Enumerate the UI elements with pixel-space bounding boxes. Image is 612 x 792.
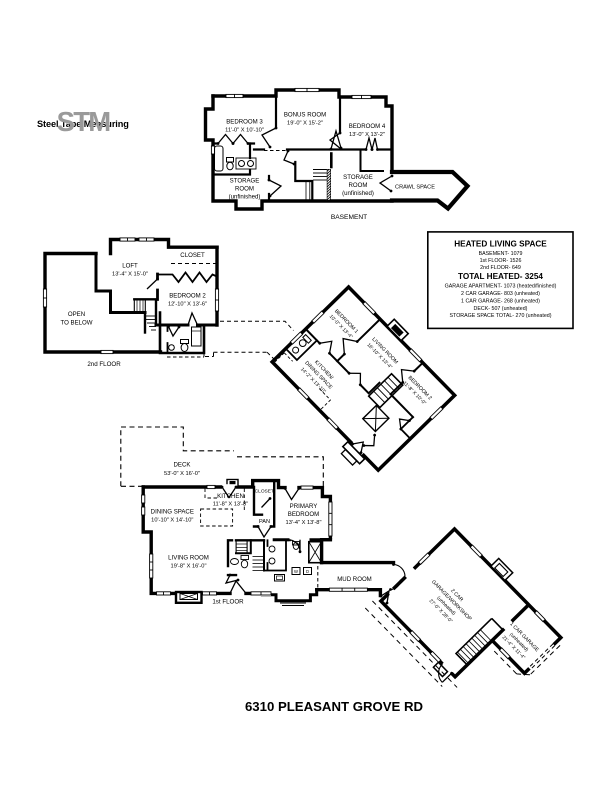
svg-text:19'-8" X 16'-0": 19'-8" X 16'-0" [171, 564, 207, 570]
svg-text:MUD ROOM: MUD ROOM [337, 576, 372, 583]
svg-text:OPEN: OPEN [68, 311, 85, 318]
svg-text:12'-10" X 13'-6": 12'-10" X 13'-6" [168, 302, 207, 308]
svg-text:1st FLOOR- 1526: 1st FLOOR- 1526 [480, 258, 522, 264]
svg-text:6310 PLEASANT GROVE RD: 6310 PLEASANT GROVE RD [245, 699, 423, 714]
svg-text:BEDROOM 4: BEDROOM 4 [349, 123, 386, 130]
svg-text:11'-8" X 13'-8": 11'-8" X 13'-8" [213, 502, 249, 508]
svg-text:BONUS ROOM: BONUS ROOM [284, 112, 326, 119]
svg-text:DECK: DECK [174, 462, 191, 469]
svg-text:W: W [294, 569, 298, 574]
svg-text:13'-0" X 13'-2": 13'-0" X 13'-2" [349, 132, 385, 138]
svg-text:DECK- 507 (unheated): DECK- 507 (unheated) [474, 306, 528, 312]
svg-text:KITCHEN: KITCHEN [217, 493, 244, 500]
svg-text:CRAWL SPACE: CRAWL SPACE [395, 185, 435, 191]
svg-text:1 CAR GARAGE- 268 (unheated): 1 CAR GARAGE- 268 (unheated) [461, 298, 540, 304]
svg-text:11'-0" X 10'-10": 11'-0" X 10'-10" [225, 128, 264, 134]
svg-text:HEATED LIVING SPACE: HEATED LIVING SPACE [454, 240, 547, 249]
svg-text:19'-0" X 15'-2": 19'-0" X 15'-2" [287, 121, 323, 127]
svg-text:STORAGE: STORAGE [230, 178, 260, 185]
svg-text:BEDROOM: BEDROOM [288, 511, 320, 518]
svg-text:LIVING ROOM: LIVING ROOM [168, 555, 209, 562]
svg-text:53'-0" X 16'-0": 53'-0" X 16'-0" [164, 471, 200, 477]
svg-text:CLOSET: CLOSET [255, 489, 274, 495]
svg-text:10'-10" X 14'-10": 10'-10" X 14'-10" [151, 518, 193, 524]
svg-text:2nd FLOOR: 2nd FLOOR [87, 361, 121, 368]
svg-text:PAN: PAN [259, 519, 270, 525]
svg-text:BASEMENT- 1079: BASEMENT- 1079 [479, 251, 523, 257]
svg-text:LOFT: LOFT [122, 263, 138, 270]
svg-text:BEDROOM 3: BEDROOM 3 [226, 119, 263, 126]
svg-text:1st FLOOR: 1st FLOOR [212, 599, 244, 606]
svg-text:DINING SPACE: DINING SPACE [151, 509, 194, 516]
svg-text:TO BELOW: TO BELOW [60, 320, 92, 327]
svg-text:(unfinished): (unfinished) [229, 194, 261, 201]
svg-text:BASEMENT: BASEMENT [331, 214, 367, 221]
svg-text:D: D [306, 569, 309, 574]
svg-text:(unfinished): (unfinished) [342, 190, 374, 197]
svg-text:2 CAR GARAGE- 803 (unheated): 2 CAR GARAGE- 803 (unheated) [461, 291, 540, 297]
svg-text:13'-4" X 13'-8": 13'-4" X 13'-8" [286, 520, 322, 526]
svg-text:ROOM: ROOM [235, 186, 254, 193]
svg-text:ROOM: ROOM [349, 182, 368, 189]
svg-text:CLOSET: CLOSET [180, 252, 205, 259]
svg-text:STM: STM [57, 106, 111, 137]
svg-text:GARAGE APARTMENT- 1073 (heated: GARAGE APARTMENT- 1073 (heated/finished) [445, 284, 557, 290]
svg-text:TOTAL HEATED- 3254: TOTAL HEATED- 3254 [458, 272, 543, 281]
svg-text:PRIMARY: PRIMARY [290, 503, 318, 510]
svg-text:STORAGE: STORAGE [343, 174, 373, 181]
svg-text:STORAGE SPACE TOTAL- 270 (unhe: STORAGE SPACE TOTAL- 270 (unheated) [450, 313, 552, 319]
svg-text:BEDROOM 2: BEDROOM 2 [169, 293, 206, 300]
svg-text:13'-4" X 15'-0": 13'-4" X 15'-0" [112, 272, 148, 278]
svg-text:2nd FLOOR- 649: 2nd FLOOR- 649 [480, 265, 521, 271]
